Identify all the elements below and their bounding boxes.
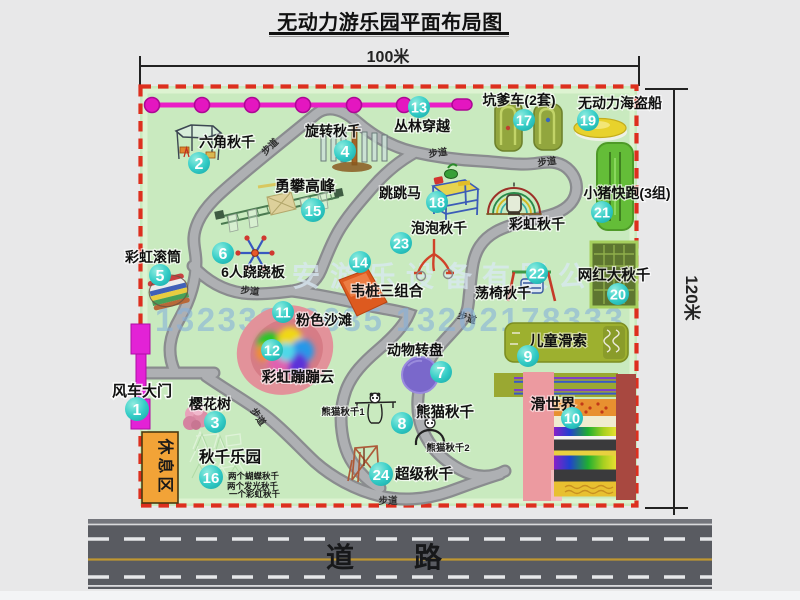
svg-text:120米: 120米 (682, 275, 702, 321)
svg-text:1: 1 (133, 402, 142, 419)
svg-text:小猪快跑(3组): 小猪快跑(3组) (583, 185, 670, 201)
svg-text:2: 2 (195, 156, 204, 173)
svg-text:22: 22 (529, 267, 545, 283)
svg-text:韦桩三组合: 韦桩三组合 (351, 282, 424, 300)
svg-text:熊猫秋千2: 熊猫秋千2 (426, 442, 469, 454)
svg-text:100米: 100米 (367, 47, 411, 66)
svg-text:9: 9 (524, 349, 533, 366)
svg-text:24: 24 (373, 467, 390, 484)
svg-text:19: 19 (580, 114, 596, 130)
svg-text:20: 20 (610, 288, 626, 304)
svg-text:14: 14 (352, 256, 368, 272)
svg-text:21: 21 (594, 206, 610, 222)
svg-text:旋转秋千: 旋转秋千 (304, 123, 361, 139)
svg-text:动物转盘: 动物转盘 (387, 342, 443, 358)
svg-text:儿童滑索: 儿童滑索 (528, 332, 587, 350)
svg-text:无动力海盗船: 无动力海盗船 (577, 95, 662, 111)
svg-text:15: 15 (305, 203, 322, 220)
svg-text:一个彩虹秋千: 一个彩虹秋千 (229, 489, 281, 499)
svg-text:网红大秋千: 网红大秋千 (578, 266, 651, 284)
svg-text:跳跳马: 跳跳马 (379, 185, 421, 201)
svg-text:六角秋千: 六角秋千 (199, 134, 255, 150)
svg-text:23: 23 (393, 237, 409, 253)
svg-text:11: 11 (275, 306, 290, 322)
svg-text:荡椅秋千: 荡椅秋千 (475, 285, 531, 301)
svg-text:步道: 步道 (378, 495, 398, 507)
svg-text:熊猫秋千: 熊猫秋千 (416, 403, 474, 421)
svg-text:10: 10 (564, 412, 580, 428)
svg-text:秋千乐园: 秋千乐园 (199, 447, 261, 466)
svg-text:勇攀高峰: 勇攀高峰 (275, 177, 336, 195)
svg-text:13: 13 (411, 101, 427, 117)
svg-text:彩虹蹦蹦云: 彩虹蹦蹦云 (261, 368, 335, 386)
svg-text:6人跷跷板: 6人跷跷板 (221, 264, 286, 280)
svg-text:7: 7 (437, 365, 446, 382)
svg-text:坑爹车(2套): 坑爹车(2套) (482, 92, 555, 108)
svg-text:4: 4 (341, 144, 350, 161)
svg-text:风车大门: 风车大门 (112, 382, 172, 400)
svg-text:休息区: 休息区 (156, 437, 175, 495)
svg-text:18: 18 (429, 196, 445, 212)
svg-text:彩虹滚筒: 彩虹滚筒 (124, 249, 181, 265)
svg-text:樱花树: 樱花树 (189, 396, 231, 412)
svg-text:3: 3 (211, 415, 220, 432)
svg-text:熊猫秋千1: 熊猫秋千1 (321, 406, 365, 418)
svg-text:路: 路 (414, 542, 443, 573)
svg-text:6: 6 (219, 246, 228, 263)
svg-text:泡泡秋千: 泡泡秋千 (411, 220, 467, 236)
svg-text:12: 12 (264, 344, 280, 360)
svg-text:步道: 步道 (240, 284, 261, 298)
svg-text:16: 16 (203, 470, 220, 487)
svg-text:8: 8 (398, 416, 407, 433)
svg-text:彩虹秋千: 彩虹秋千 (508, 216, 565, 232)
svg-text:5: 5 (156, 268, 165, 285)
svg-text:两个蝴蝶秋千: 两个蝴蝶秋千 (228, 471, 280, 481)
svg-text:道: 道 (326, 541, 354, 573)
svg-text:粉色沙滩: 粉色沙滩 (296, 312, 352, 328)
svg-text:超级秋千: 超级秋千 (394, 465, 453, 483)
svg-text:17: 17 (516, 114, 532, 130)
svg-text:无动力游乐园平面布局图: 无动力游乐园平面布局图 (277, 10, 503, 34)
svg-text:丛林穿越: 丛林穿越 (394, 118, 451, 134)
